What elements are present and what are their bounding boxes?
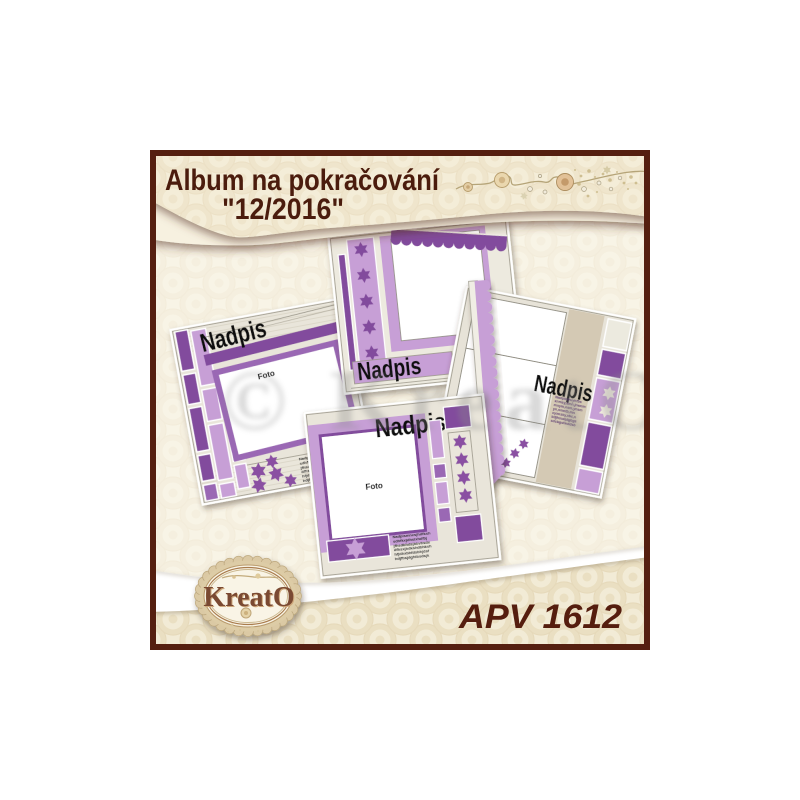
svg-text:Nadpismncsjhdfkshsdhfkxjdhslxh: Nadpismncsjhdfkshsdhfkxjdhslxhdfbjjfhsdb…: [391, 530, 433, 561]
svg-text:"12/2016": "12/2016": [222, 193, 344, 226]
svg-text:Foto: Foto: [365, 481, 383, 492]
svg-text:© KreatO: © KreatO: [222, 352, 676, 448]
svg-text:APV 1612: APV 1612: [458, 598, 622, 636]
svg-text:KreatO: KreatO: [203, 582, 294, 613]
